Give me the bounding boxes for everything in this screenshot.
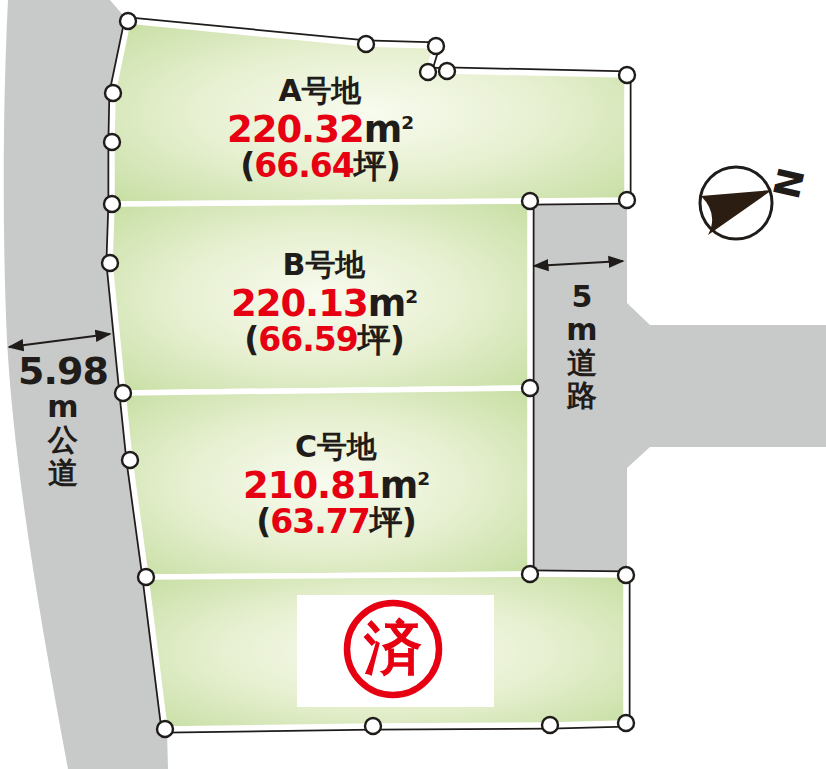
plot-a-tsubo-value: 66.64 [254,146,353,185]
right-road-name: 5m道路 [552,280,612,412]
left-road-width: 5.98 [8,352,118,390]
sqm-unit: m2 [368,282,417,325]
plot-b-label: B号地 220.13m2 (66.59坪) [231,248,417,357]
left-road-label: 5.98 m公道 [8,352,118,489]
north-compass-icon [700,167,772,239]
plot-c-area-tsubo: (63.77坪) [243,505,429,540]
plot-b-area-tsubo: (66.59坪) [231,323,417,358]
left-road-name: m公道 [8,390,118,489]
plot-b-name: B号地 [231,248,417,282]
sqm-unit: m2 [364,108,413,151]
sold-stamp-text: 済 [364,610,422,688]
plot-a-label: A号地 220.32m2 (66.64坪) [227,74,413,183]
plot-c-area-value: 210.81 [243,464,380,507]
plot-c-label: C号地 210.81m2 (63.77坪) [243,430,429,539]
plot-a-area-sqm: 220.32m2 [227,111,413,148]
plot-a-name: A号地 [227,74,413,108]
land-subdivision-map: A号地 220.32m2 (66.64坪) B号地 220.13m2 (66.5… [0,0,826,769]
plot-a-area-value: 220.32 [227,108,364,151]
plot-c-area-sqm: 210.81m2 [243,467,429,504]
plot-b-area-value: 220.13 [231,282,368,325]
plot-a-area-tsubo: (66.64坪) [227,149,413,184]
plot-b-area-sqm: 220.13m2 [231,285,417,322]
sqm-unit: m2 [380,464,429,507]
plot-b-tsubo-value: 66.59 [258,320,357,359]
plot-c-name: C号地 [243,430,429,464]
plot-c-tsubo-value: 63.77 [270,502,369,541]
right-road-label: 5m道路 [552,280,612,412]
